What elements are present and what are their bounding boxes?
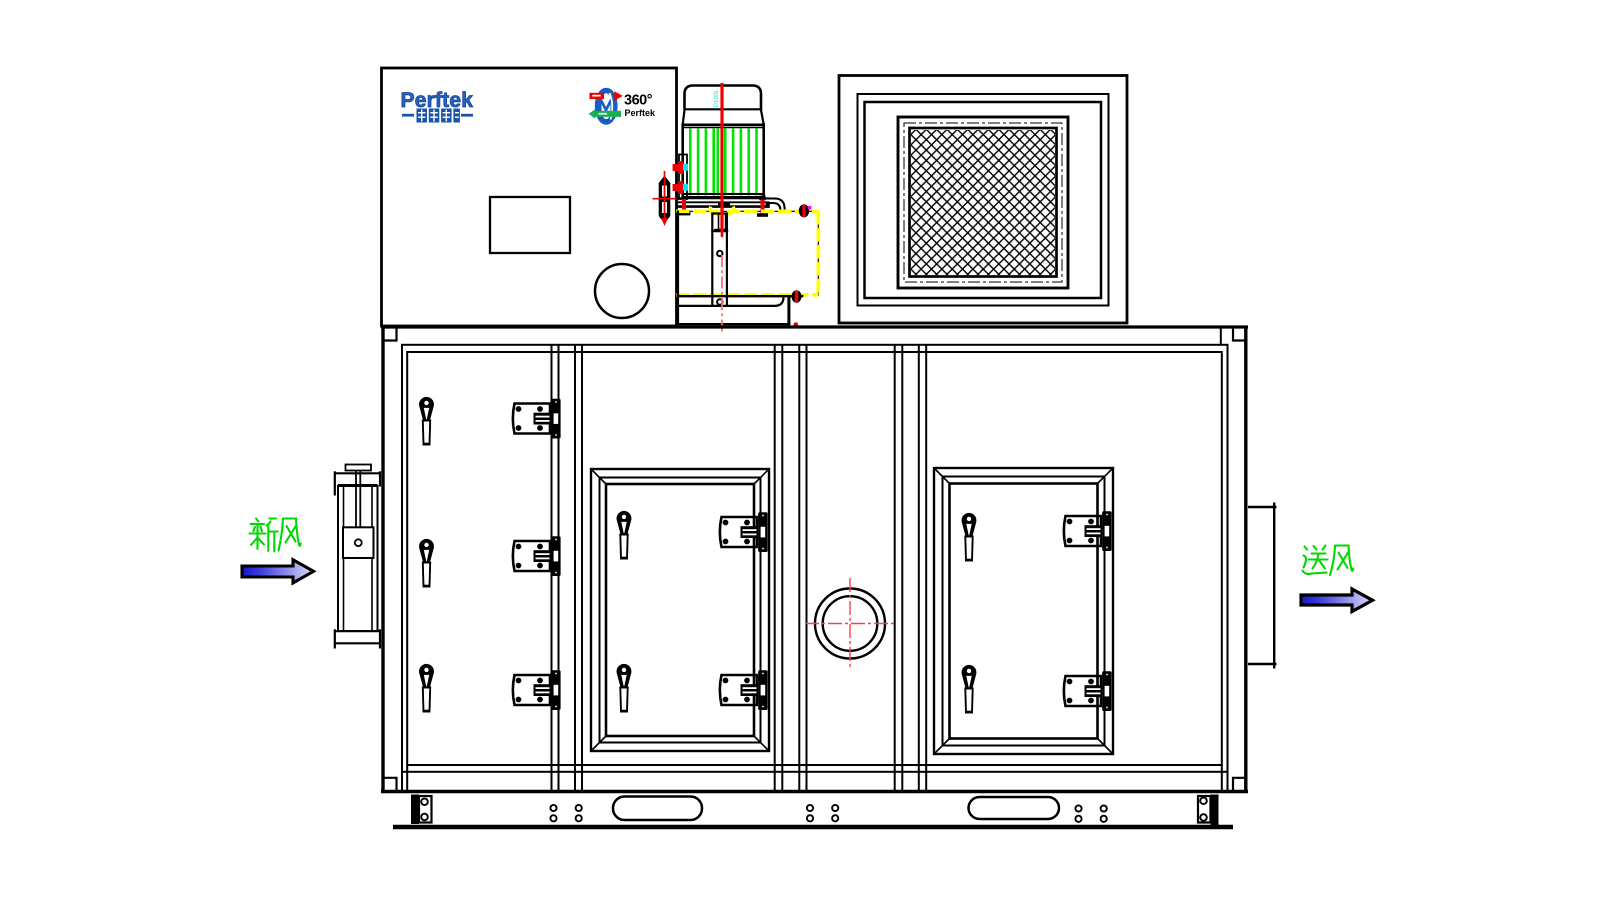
svg-text:360°: 360° (624, 93, 653, 109)
svg-text:Perftek: Perftek (625, 108, 657, 118)
svg-text:D100L: D100L (713, 89, 720, 108)
svg-text:Perftek: Perftek (401, 89, 474, 112)
